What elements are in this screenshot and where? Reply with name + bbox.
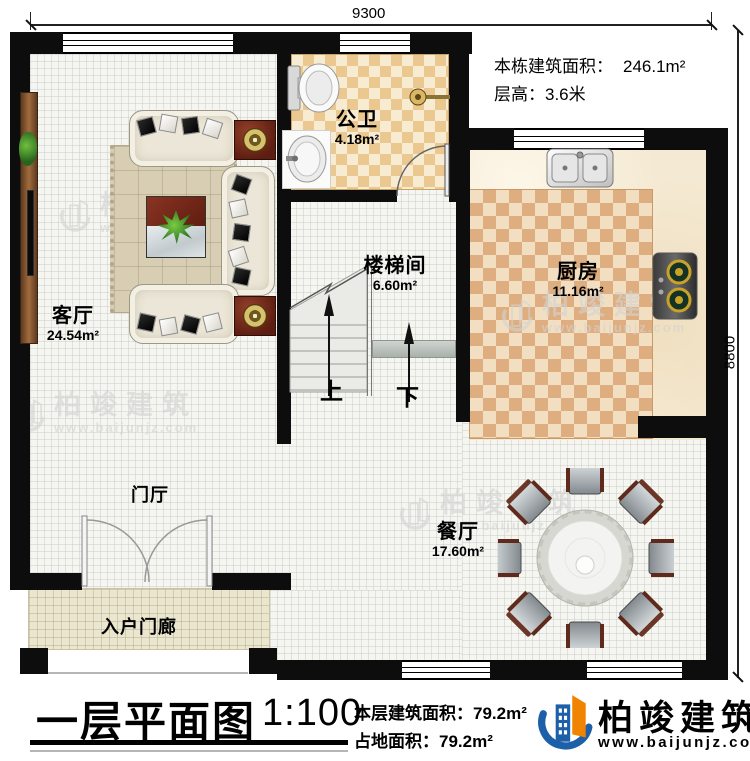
brand-website: www.baijunjz.com bbox=[598, 734, 750, 751]
pillow bbox=[159, 114, 179, 134]
wall-porch-top-right bbox=[212, 573, 291, 590]
room-area: 4.18m² bbox=[312, 132, 402, 147]
porch-step-line bbox=[48, 672, 248, 674]
room-name: 客厅 bbox=[33, 306, 113, 328]
floor-height-label: 层高： bbox=[494, 85, 545, 104]
footprint-value: 79.2m² bbox=[439, 732, 493, 751]
room-name: 楼梯间 bbox=[350, 256, 440, 278]
brand-logo-icon bbox=[536, 688, 594, 756]
footprint-line: 占地面积：79.2m² bbox=[354, 727, 493, 752]
room-label-foyer: 门厅 bbox=[118, 486, 182, 505]
room-area: 6.60m² bbox=[350, 278, 440, 293]
dim-right-label: 8800 bbox=[722, 323, 739, 383]
lamp bbox=[243, 304, 267, 328]
floor-area-label: 本层建筑面积： bbox=[354, 704, 473, 723]
dim-ext-top-left bbox=[30, 12, 31, 30]
wall-bottom-2 bbox=[490, 660, 587, 680]
room-name: 厨房 bbox=[528, 262, 628, 284]
wall-bathroom-bottom bbox=[283, 190, 397, 202]
floor-plan-canvas: 柏竣建筑 www.baijunjz.com 柏竣建筑 www.baijunjz.… bbox=[0, 0, 750, 761]
room-area: 17.60m² bbox=[418, 544, 498, 559]
kitchen-carpet bbox=[470, 190, 652, 438]
room-label-bathroom: 公卫 4.18m² bbox=[312, 110, 402, 147]
wall-bottom-3 bbox=[682, 660, 728, 680]
pillow bbox=[228, 198, 248, 218]
window-dining-bottom-1 bbox=[402, 660, 490, 680]
room-name: 门厅 bbox=[118, 486, 182, 505]
room-label-living: 客厅 24.54m² bbox=[33, 306, 113, 343]
dining-set bbox=[498, 468, 674, 648]
window-bathroom-top bbox=[340, 32, 410, 54]
wall-right bbox=[706, 150, 728, 680]
pillow bbox=[136, 312, 156, 332]
title-rule bbox=[30, 740, 348, 745]
room-label-kitchen: 厨房 11.16m² bbox=[528, 262, 628, 299]
stairs-up-label: 上 bbox=[320, 372, 343, 406]
kitchen-sink bbox=[546, 148, 614, 188]
room-label-stairwell: 楼梯间 6.60m² bbox=[350, 256, 440, 293]
dim-top-label: 9300 bbox=[348, 5, 389, 22]
total-area-value: 246.1m² bbox=[623, 57, 685, 76]
window-dining-bottom-2 bbox=[587, 660, 682, 680]
room-name: 入户门廊 bbox=[84, 618, 194, 637]
room-name: 公卫 bbox=[312, 110, 402, 132]
wall-bottom-1 bbox=[277, 660, 402, 680]
dim-ext-top-right bbox=[711, 12, 712, 30]
porch-corner-left bbox=[20, 648, 48, 674]
pillow bbox=[159, 317, 179, 337]
title-rule-shadow bbox=[30, 750, 348, 752]
porch-corner-right bbox=[249, 648, 277, 674]
window-kitchen-top bbox=[514, 128, 644, 150]
room-label-porch: 入户门廊 bbox=[84, 618, 194, 637]
footprint-label: 占地面积： bbox=[354, 732, 439, 751]
pillow bbox=[231, 266, 251, 286]
entry-double-door bbox=[78, 514, 216, 588]
pillow bbox=[232, 223, 251, 242]
stove bbox=[652, 252, 698, 320]
shower-mixer bbox=[408, 88, 450, 106]
room-label-dining: 餐厅 17.60m² bbox=[418, 522, 498, 559]
dim-line-top bbox=[30, 24, 712, 26]
pillow bbox=[181, 116, 200, 135]
room-area: 11.16m² bbox=[528, 284, 628, 299]
lamp bbox=[243, 128, 267, 152]
floor-area-value: 79.2m² bbox=[473, 704, 527, 723]
floor-height-line: 层高：3.6米 bbox=[494, 80, 586, 105]
total-area-line: 本栋建筑面积：246.1m² bbox=[494, 52, 685, 77]
floor-area-line: 本层建筑面积：79.2m² bbox=[354, 699, 527, 724]
total-area-label: 本栋建筑面积： bbox=[494, 57, 613, 76]
plan-scale: 1:100 bbox=[262, 692, 362, 735]
main-floor-bottom bbox=[270, 590, 462, 660]
stairs-down-label: 下 bbox=[396, 378, 419, 412]
bathroom-door bbox=[395, 142, 451, 198]
wall-kitchen-bottom bbox=[638, 416, 728, 438]
room-name: 餐厅 bbox=[418, 522, 498, 544]
floor-height-value: 3.6米 bbox=[545, 85, 586, 104]
wall-porch-top-left bbox=[20, 573, 82, 590]
room-area: 24.54m² bbox=[33, 328, 113, 343]
tv bbox=[27, 190, 34, 276]
window-living-top bbox=[63, 32, 233, 54]
